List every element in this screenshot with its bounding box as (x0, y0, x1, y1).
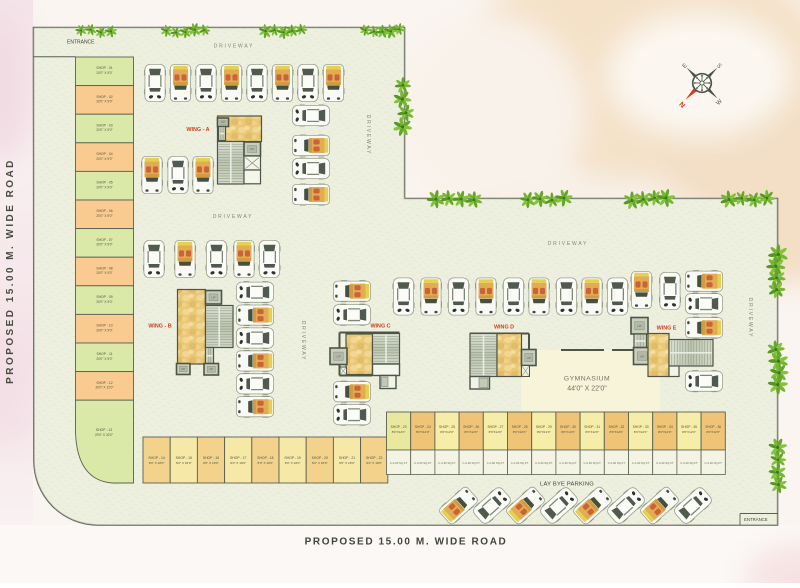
svg-text:DRIVEWAY: DRIVEWAY (300, 321, 306, 362)
svg-text:20'0" X 9'0": 20'0" X 9'0" (96, 357, 112, 361)
svg-text:C.A 90 SQ.FT: C.A 90 SQ.FT (656, 461, 674, 465)
svg-text:DRIVEWAY: DRIVEWAY (213, 214, 254, 220)
svg-text:SHOP - 10: SHOP - 10 (96, 324, 112, 328)
svg-text:8'0"X12'0": 8'0"X12'0" (682, 430, 696, 434)
svg-text:20'0" X 32'0": 20'0" X 32'0" (95, 433, 113, 437)
svg-text:SHOP - 08: SHOP - 08 (96, 266, 112, 270)
svg-text:PROPOSED 15.00 M. WIDE ROAD: PROPOSED 15.00 M. WIDE ROAD (5, 158, 16, 384)
svg-text:UP: UP (181, 367, 185, 371)
svg-text:DRIVEWAY: DRIVEWAY (365, 115, 371, 156)
svg-text:SHOP - 02: SHOP - 02 (96, 95, 112, 99)
svg-text:SHOP - 28: SHOP - 28 (512, 425, 528, 429)
svg-text:20'0" X 9'0": 20'0" X 9'0" (96, 100, 112, 104)
svg-text:20'0" X 9'0": 20'0" X 9'0" (96, 271, 112, 275)
svg-text:8'0"X12'0": 8'0"X12'0" (561, 430, 575, 434)
svg-text:SHOP - 30: SHOP - 30 (560, 425, 576, 429)
svg-text:C.A 90 SQ.FT: C.A 90 SQ.FT (414, 461, 432, 465)
svg-text:SHOP - 36: SHOP - 36 (705, 425, 721, 429)
svg-text:UP: UP (337, 355, 341, 359)
svg-text:8'0" X 18'0": 8'0" X 18'0" (149, 461, 165, 465)
svg-text:20'0" X 9'0": 20'0" X 9'0" (96, 300, 112, 304)
svg-text:8'0"X12'0": 8'0"X12'0" (416, 430, 430, 434)
svg-text:SHOP - 11: SHOP - 11 (96, 352, 112, 356)
svg-text:C.A 90 SQ.FT: C.A 90 SQ.FT (390, 461, 408, 465)
svg-text:44'0" X 22'0": 44'0" X 22'0" (567, 386, 607, 393)
svg-text:8'0"X12'0": 8'0"X12'0" (658, 430, 672, 434)
svg-text:C.A 90 SQ.FT: C.A 90 SQ.FT (487, 461, 505, 465)
svg-text:PROPOSED 15.00 M. WIDE ROAD: PROPOSED 15.00 M. WIDE ROAD (305, 537, 508, 548)
svg-text:SHOP - 24: SHOP - 24 (415, 425, 431, 429)
svg-text:C.A 90 SQ.FT: C.A 90 SQ.FT (704, 461, 722, 465)
svg-text:8'0" X 18'0": 8'0" X 18'0" (176, 461, 192, 465)
svg-text:8'0" X 18'0": 8'0" X 18'0" (366, 461, 382, 465)
svg-text:SHOP - 04: SHOP - 04 (96, 152, 112, 156)
svg-text:C.A 90 SQ.FT: C.A 90 SQ.FT (583, 461, 601, 465)
svg-text:8'0"X12'0": 8'0"X12'0" (513, 430, 527, 434)
svg-text:SHOP - 25: SHOP - 25 (439, 425, 455, 429)
svg-text:UP: UP (212, 295, 216, 299)
svg-text:WING E: WING E (657, 326, 677, 332)
svg-text:8'0" X 18'0": 8'0" X 18'0" (230, 461, 246, 465)
svg-text:SHOP - 18: SHOP - 18 (257, 456, 273, 460)
svg-text:8'0"X12'0": 8'0"X12'0" (537, 430, 551, 434)
svg-text:C.A 90 SQ.FT: C.A 90 SQ.FT (535, 461, 553, 465)
svg-text:DRIVEWAY: DRIVEWAY (214, 44, 255, 50)
svg-text:20'0" X 12'0": 20'0" X 12'0" (95, 386, 113, 390)
svg-text:SHOP - 26: SHOP - 26 (463, 425, 479, 429)
svg-text:SHOP - 34: SHOP - 34 (657, 425, 673, 429)
svg-text:UP: UP (527, 356, 531, 360)
svg-text:8'0"X12'0": 8'0"X12'0" (440, 430, 454, 434)
svg-text:SHOP - 17: SHOP - 17 (230, 456, 246, 460)
svg-text:WING - A: WING - A (186, 127, 209, 133)
svg-text:C.A 90 SQ.FT: C.A 90 SQ.FT (559, 461, 577, 465)
svg-text:SHOP - 14: SHOP - 14 (148, 456, 164, 460)
svg-text:SHOP - 22: SHOP - 22 (366, 456, 382, 460)
svg-text:GYMNASIUM: GYMNASIUM (564, 376, 610, 383)
svg-text:8'0" X 18'0": 8'0" X 18'0" (285, 461, 301, 465)
svg-text:8'0"X12'0": 8'0"X12'0" (489, 430, 503, 434)
svg-text:8'0"X12'0": 8'0"X12'0" (464, 430, 478, 434)
svg-text:UP: UP (250, 147, 254, 151)
svg-text:UP: UP (640, 354, 644, 358)
svg-text:DRIVEWAY: DRIVEWAY (548, 241, 589, 247)
svg-text:8'0"X12'0": 8'0"X12'0" (706, 430, 720, 434)
svg-text:C.A 90 SQ.FT: C.A 90 SQ.FT (632, 461, 650, 465)
svg-text:20'0" X 9'0": 20'0" X 9'0" (96, 243, 112, 247)
svg-text:8'0"X12'0": 8'0"X12'0" (585, 430, 599, 434)
svg-text:SHOP - 29: SHOP - 29 (536, 425, 552, 429)
svg-text:8'0"X12'0": 8'0"X12'0" (392, 430, 406, 434)
svg-text:SHOP - 19: SHOP - 19 (284, 456, 300, 460)
svg-text:ENTRANCE: ENTRANCE (67, 40, 95, 46)
svg-text:SHOP - 01: SHOP - 01 (96, 66, 112, 70)
svg-text:DRIVEWAY: DRIVEWAY (747, 298, 753, 339)
svg-text:SHOP - 21: SHOP - 21 (339, 456, 355, 460)
svg-text:SHOP - 31: SHOP - 31 (584, 425, 600, 429)
svg-text:C.A 90 SQ.FT: C.A 90 SQ.FT (462, 461, 480, 465)
svg-text:20'0" X 9'0": 20'0" X 9'0" (96, 214, 112, 218)
svg-text:SHOP - 27: SHOP - 27 (487, 425, 503, 429)
svg-text:SHOP - 35: SHOP - 35 (681, 425, 697, 429)
svg-text:SHOP - 13: SHOP - 13 (96, 428, 112, 432)
svg-text:20'0" X 9'0": 20'0" X 9'0" (96, 128, 112, 132)
svg-text:20'0" X 9'0": 20'0" X 9'0" (96, 185, 112, 189)
svg-text:8'0" X 18'0": 8'0" X 18'0" (203, 461, 219, 465)
svg-text:8'0"X12'0": 8'0"X12'0" (610, 430, 624, 434)
svg-text:C.A 90 SQ.FT: C.A 90 SQ.FT (438, 461, 456, 465)
svg-text:UP: UP (221, 120, 225, 124)
svg-text:UP: UP (638, 324, 642, 328)
svg-text:SHOP - 20: SHOP - 20 (312, 456, 328, 460)
svg-text:SHOP - 16: SHOP - 16 (203, 456, 219, 460)
svg-text:SHOP - 32: SHOP - 32 (608, 425, 624, 429)
svg-text:SHOP - 12: SHOP - 12 (96, 381, 112, 385)
svg-text:SHOP - 23: SHOP - 23 (391, 425, 407, 429)
svg-text:ENTRANCE: ENTRANCE (744, 517, 768, 522)
svg-text:20'0" X 9'0": 20'0" X 9'0" (96, 157, 112, 161)
svg-text:WING D: WING D (494, 325, 514, 331)
svg-text:20'0" X 9'0": 20'0" X 9'0" (96, 71, 112, 75)
svg-text:8'0" X 18'0": 8'0" X 18'0" (339, 461, 355, 465)
svg-text:LAY BYE PARKING: LAY BYE PARKING (540, 482, 594, 488)
svg-text:WING - B: WING - B (148, 324, 171, 330)
svg-text:WING C: WING C (370, 324, 390, 330)
svg-text:SHOP - 09: SHOP - 09 (96, 295, 112, 299)
svg-text:SHOP - 07: SHOP - 07 (96, 238, 112, 242)
svg-text:8'0" X 18'0": 8'0" X 18'0" (312, 461, 328, 465)
svg-text:8'0" X 18'0": 8'0" X 18'0" (258, 461, 274, 465)
svg-text:UP: UP (209, 367, 213, 371)
svg-text:8'0"X12'0": 8'0"X12'0" (634, 430, 648, 434)
svg-text:SHOP - 06: SHOP - 06 (96, 209, 112, 213)
svg-text:SHOP - 15: SHOP - 15 (176, 456, 192, 460)
svg-text:C.A 90 SQ.FT: C.A 90 SQ.FT (680, 461, 698, 465)
svg-text:C.A 90 SQ.FT: C.A 90 SQ.FT (511, 461, 529, 465)
svg-text:C.A 90 SQ.FT: C.A 90 SQ.FT (608, 461, 626, 465)
svg-text:SHOP - 33: SHOP - 33 (633, 425, 649, 429)
svg-text:SHOP - 05: SHOP - 05 (96, 181, 112, 185)
svg-text:20'0" X 9'0": 20'0" X 9'0" (96, 328, 112, 332)
svg-text:SHOP - 03: SHOP - 03 (96, 123, 112, 127)
